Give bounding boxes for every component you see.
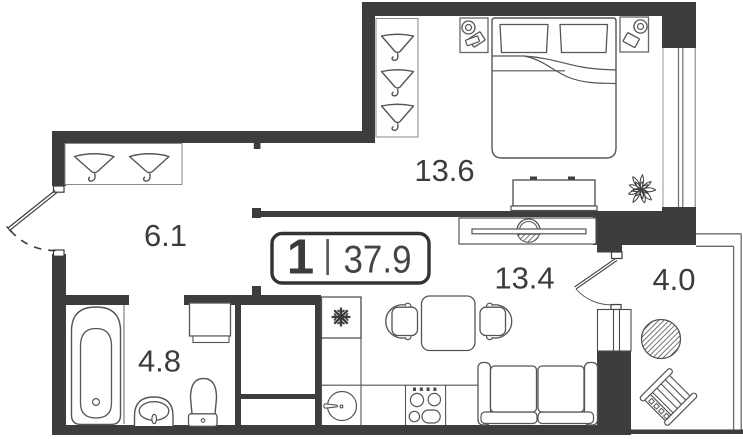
svg-text:4.8: 4.8 bbox=[138, 344, 181, 379]
svg-text:37.9: 37.9 bbox=[344, 239, 412, 282]
svg-text:13.6: 13.6 bbox=[414, 153, 474, 188]
svg-text:4.0: 4.0 bbox=[652, 262, 695, 297]
svg-text:13.4: 13.4 bbox=[494, 261, 554, 296]
svg-text:1: 1 bbox=[287, 231, 314, 285]
svg-text:6.1: 6.1 bbox=[144, 218, 187, 253]
